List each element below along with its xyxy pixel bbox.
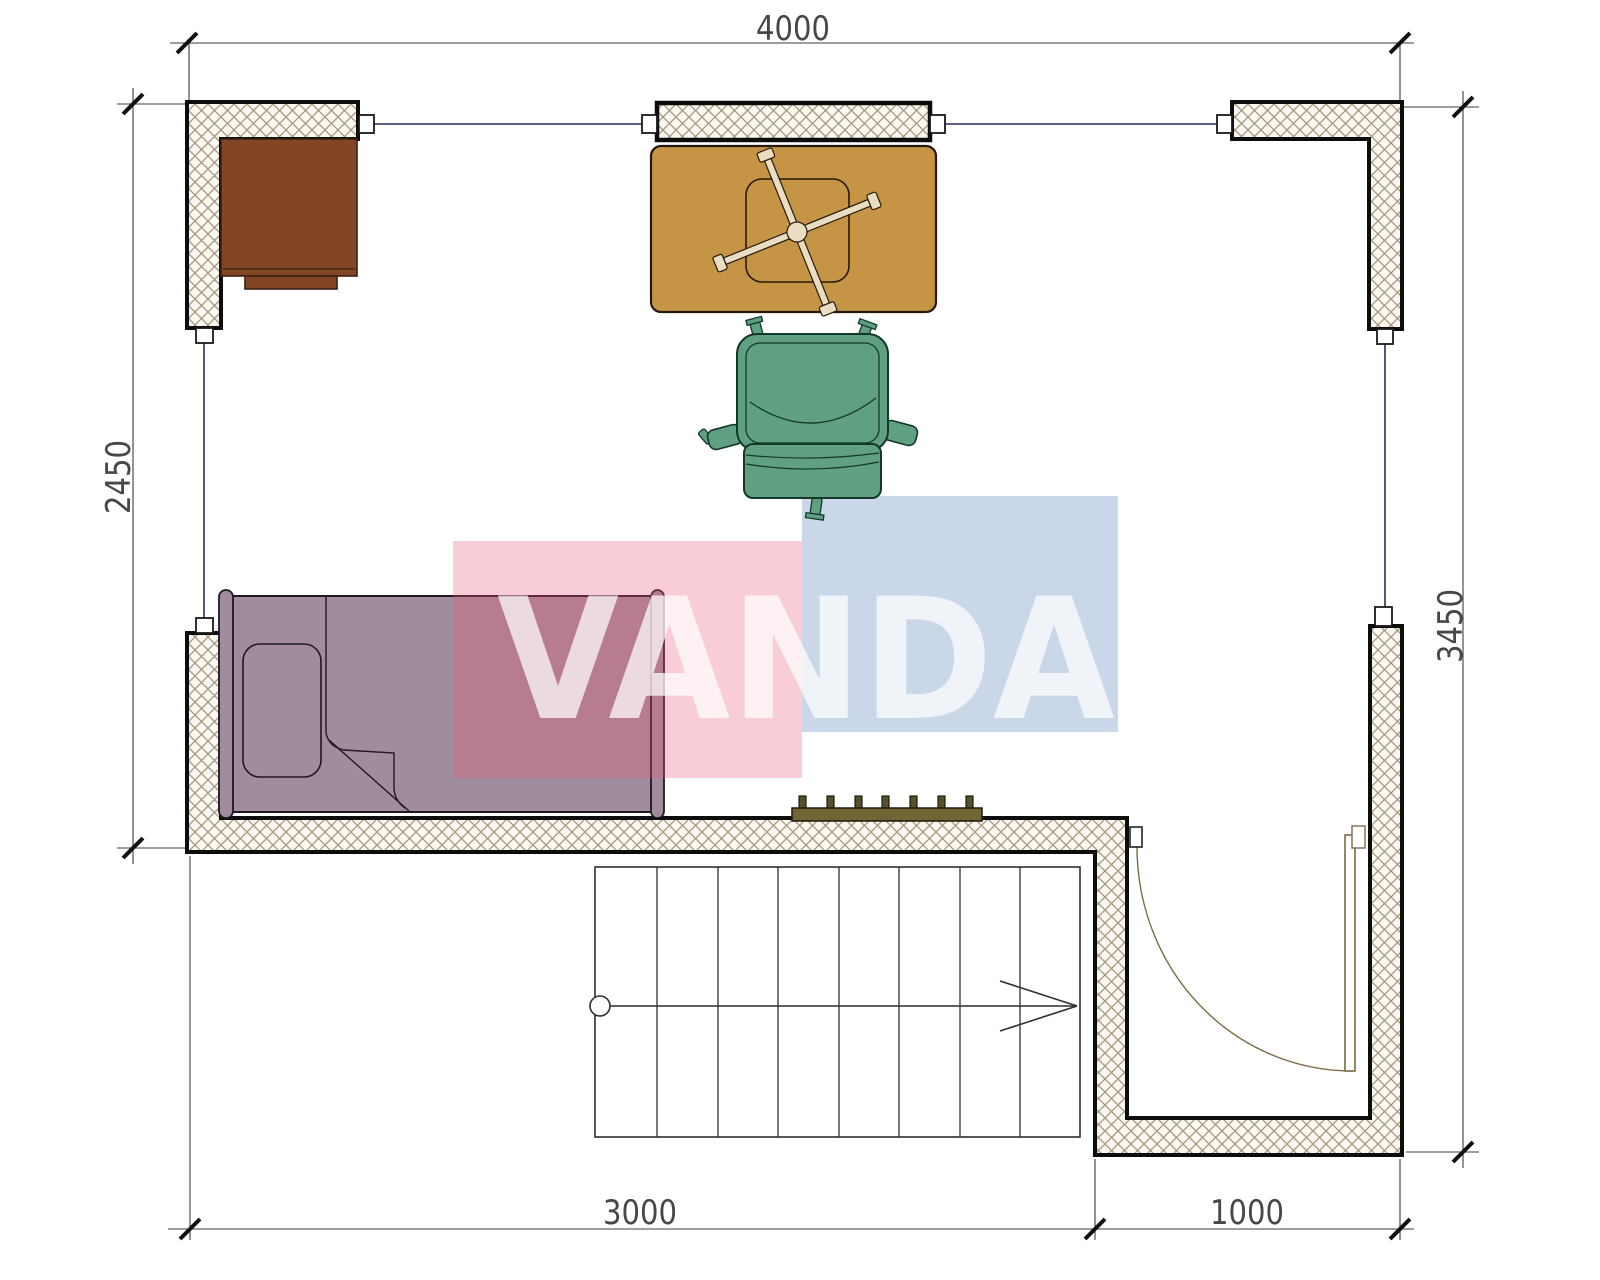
dimension-right-label: 3450 [1431,589,1471,663]
dimension-left-label: 2450 [99,440,139,514]
wall-cap [196,618,213,633]
wall-top-right [1232,102,1402,329]
wall-cap [1375,607,1392,626]
wall-cap [359,115,374,133]
dimension-bottom-left-label: 3000 [603,1193,677,1233]
door-jamb-right [1352,826,1365,848]
wall-cap [196,328,213,343]
chair-backrest [737,334,888,451]
wall-cap [1217,115,1232,133]
floor-plan-canvas: 4000 2450 3450 3000 1000 [0,0,1600,1280]
door-leaf [1345,835,1355,1071]
desk [221,139,357,289]
door-jamb-left [1130,827,1142,847]
dimension-top-label: 4000 [756,9,830,49]
bed-headboard [219,590,233,818]
dimension-bottom-right-label: 1000 [1210,1193,1284,1233]
radiator [792,796,982,821]
watermark-text: VANDA [497,562,1115,758]
watermark: VANDA [453,496,1118,778]
door-swing-arc [1137,847,1352,1071]
table [651,117,936,346]
office-chair [698,316,919,520]
chair-seat [744,444,881,498]
door [1130,826,1365,1071]
wall-cap [930,115,945,133]
floor-plan-drawing: 4000 2450 3450 3000 1000 [0,0,1600,1280]
wall-cap [1377,329,1393,344]
wall-window-top [657,103,930,140]
wall-cap [642,115,657,133]
staircase [590,867,1080,1137]
